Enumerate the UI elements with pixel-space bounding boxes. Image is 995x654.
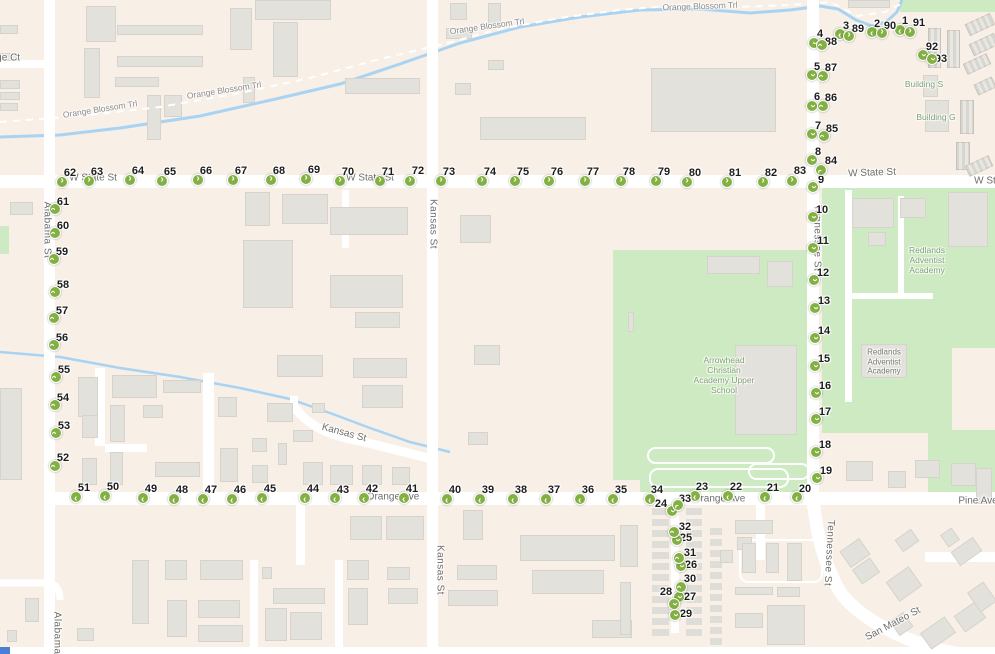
street-label-alabama-st: Alabama St: [52, 612, 63, 654]
building: [520, 535, 615, 561]
route-marker-label-11: 11: [817, 235, 829, 247]
route-marker-70[interactable]: ›: [334, 175, 346, 187]
building: [312, 403, 325, 413]
route-marker-68[interactable]: ›: [265, 174, 277, 186]
building: [468, 432, 488, 445]
route-marker-9[interactable]: ›: [807, 181, 819, 193]
direction-arrow-icon: ›: [60, 176, 63, 186]
direction-arrow-icon: ›: [230, 495, 233, 505]
route-marker-34[interactable]: ›: [644, 493, 656, 505]
building: [455, 83, 471, 95]
building: [787, 543, 802, 581]
street-label-pine-ave: Pine Ave: [958, 496, 995, 507]
route-marker-17[interactable]: ›: [810, 413, 822, 425]
building: [252, 438, 267, 452]
building: [895, 529, 920, 553]
street-label-kansas-st: Kansas St: [428, 199, 439, 249]
direction-arrow-icon: ›: [818, 134, 828, 137]
building: [293, 430, 313, 442]
building: [767, 261, 793, 287]
direction-arrow-icon: ›: [810, 278, 820, 281]
greenhouse-structure: [963, 53, 992, 75]
route-marker-37[interactable]: ›: [540, 493, 552, 505]
route-marker-51[interactable]: ›: [70, 491, 82, 503]
route-marker-49[interactable]: ›: [137, 492, 149, 504]
direction-arrow-icon: ›: [378, 175, 381, 185]
building: [353, 358, 407, 378]
building: [282, 194, 328, 224]
poi-label-arrowhead-christian-academy-upper-school: ArrowheadChristianAcademy UpperSchool: [694, 355, 755, 395]
building: [0, 92, 20, 100]
route-marker-46[interactable]: ›: [226, 493, 238, 505]
direction-arrow-icon: ›: [817, 74, 827, 77]
direction-arrow-icon: ›: [362, 494, 365, 504]
route-marker-label-27: 27: [684, 591, 696, 603]
direction-arrow-icon: ›: [48, 343, 58, 346]
route-marker-33[interactable]: ›: [672, 499, 684, 511]
building: [450, 3, 467, 20]
direction-arrow-icon: ›: [838, 30, 841, 40]
route-marker-55[interactable]: ›: [50, 371, 62, 383]
route-marker-74[interactable]: ›: [476, 175, 488, 187]
route-marker-22[interactable]: ›: [722, 490, 734, 502]
direction-arrow-icon: ›: [670, 602, 680, 605]
direction-arrow-icon: ›: [648, 495, 651, 505]
direction-arrow-icon: ›: [74, 493, 77, 503]
route-marker-19[interactable]: ›: [811, 472, 823, 484]
street-label-w-state-st: W State St: [848, 167, 896, 180]
street-label-tennessee-st: Tennessee St: [822, 519, 836, 586]
building: [448, 590, 498, 606]
route-marker-81[interactable]: ›: [721, 176, 733, 188]
building: [347, 560, 369, 580]
direction-arrow-icon: ›: [48, 316, 58, 319]
direction-arrow-icon: ›: [671, 613, 681, 616]
direction-arrow-icon: ›: [870, 28, 873, 38]
building: [348, 588, 368, 625]
direction-arrow-icon: ›: [103, 492, 106, 502]
direction-arrow-icon: ›: [685, 176, 688, 186]
building: [220, 448, 238, 482]
building: [278, 443, 287, 465]
building: [846, 461, 873, 481]
building: [262, 567, 272, 579]
route-marker-label-91: 91: [913, 17, 925, 29]
direction-arrow-icon: ›: [260, 494, 263, 504]
poi-label-building-s: Building S: [905, 79, 943, 89]
route-marker-40[interactable]: ›: [441, 493, 453, 505]
route-marker-16[interactable]: ›: [810, 387, 822, 399]
route-marker-14[interactable]: ›: [809, 332, 821, 344]
direction-arrow-icon: ›: [654, 175, 657, 185]
route-marker-35[interactable]: ›: [607, 493, 619, 505]
route-marker-65[interactable]: ›: [156, 175, 168, 187]
building: [86, 6, 116, 42]
building: [868, 232, 886, 246]
direction-arrow-icon: ›: [908, 26, 911, 36]
building: [10, 202, 33, 215]
building: [620, 582, 631, 635]
building: [362, 385, 403, 408]
route-marker-39[interactable]: ›: [474, 493, 486, 505]
direction-arrow-icon: ›: [48, 257, 58, 260]
building: [267, 403, 293, 422]
direction-arrow-icon: ›: [402, 494, 405, 504]
route-marker-50[interactable]: ›: [99, 490, 111, 502]
direction-arrow-icon: ›: [808, 158, 818, 161]
direction-arrow-icon: ›: [583, 175, 586, 185]
direction-arrow-icon: ›: [304, 173, 307, 183]
map-canvas[interactable]: Orange CtW State StW State StW State StW…: [0, 0, 995, 654]
building: [330, 207, 408, 235]
direction-arrow-icon: ›: [813, 476, 823, 479]
direction-arrow-icon: ›: [160, 175, 163, 185]
route-marker-93[interactable]: ›: [926, 53, 938, 65]
direction-arrow-icon: ›: [809, 215, 819, 218]
building: [480, 117, 586, 140]
direction-arrow-icon: ›: [544, 495, 547, 505]
building: [463, 510, 483, 540]
greenhouse-structure: [947, 30, 960, 68]
building: [886, 566, 923, 602]
direction-arrow-icon: ›: [790, 175, 793, 185]
direction-arrow-icon: ›: [172, 495, 175, 505]
building: [948, 192, 988, 247]
route-marker-53[interactable]: ›: [50, 427, 62, 439]
route-marker-label-84: 84: [825, 155, 837, 167]
building: [25, 598, 39, 622]
route-marker-43[interactable]: ›: [329, 492, 341, 504]
direction-arrow-icon: ›: [480, 175, 483, 185]
building: [273, 22, 298, 77]
building: [230, 8, 252, 50]
direction-arrow-icon: ›: [511, 495, 514, 505]
building: [277, 355, 323, 377]
townhouse-row: [652, 508, 669, 638]
building: [742, 543, 756, 573]
building: [132, 560, 149, 624]
parking-lot-outline: [647, 447, 775, 464]
building: [0, 388, 22, 480]
route-marker-48[interactable]: ›: [168, 493, 180, 505]
building: [155, 462, 200, 477]
direction-arrow-icon: ›: [439, 175, 442, 185]
greenhouse-structure: [965, 13, 995, 37]
building: [707, 256, 760, 274]
building: [386, 516, 424, 540]
route-marker-84[interactable]: ›: [815, 164, 827, 176]
townhouse-row: [710, 528, 722, 646]
building: [387, 567, 410, 580]
building: [198, 600, 240, 618]
direction-arrow-icon: ›: [49, 290, 59, 293]
building: [848, 0, 890, 8]
route-marker-73[interactable]: ›: [435, 175, 447, 187]
route-marker-label-83: 83: [794, 165, 806, 177]
route-marker-80[interactable]: ›: [681, 176, 693, 188]
direction-arrow-icon: ›: [795, 493, 798, 503]
route-marker-36[interactable]: ›: [574, 493, 586, 505]
trail-label-orange-blossom-trl: Orange Blossom Trl: [62, 98, 138, 120]
direction-arrow-icon: ›: [763, 493, 766, 503]
direction-arrow-icon: ›: [668, 530, 678, 533]
greenhouse-structure: [960, 100, 974, 134]
building: [165, 560, 187, 580]
route-marker-71[interactable]: ›: [374, 175, 386, 187]
route-marker-29[interactable]: ›: [669, 609, 681, 621]
route-marker-75[interactable]: ›: [509, 175, 521, 187]
building: [218, 397, 237, 417]
building: [628, 312, 634, 332]
route-marker-62[interactable]: ›: [56, 176, 68, 188]
road-local-road: [203, 373, 214, 493]
direction-arrow-icon: ›: [408, 175, 411, 185]
parking-lot-outline: [748, 463, 810, 480]
direction-arrow-icon: ›: [50, 375, 60, 378]
route-marker-78[interactable]: ›: [615, 175, 627, 187]
building: [84, 48, 100, 98]
building: [245, 192, 270, 226]
street-label-orange-ct: Orange Ct: [0, 53, 20, 64]
building: [532, 570, 604, 594]
route-marker-56[interactable]: ›: [48, 339, 60, 351]
route-marker-57[interactable]: ›: [48, 312, 60, 324]
direction-arrow-icon: ›: [812, 417, 822, 420]
road-local-road: [250, 560, 258, 654]
route-marker-31[interactable]: ›: [673, 552, 685, 564]
road-campus-road: [845, 190, 852, 402]
route-marker-15[interactable]: ›: [809, 360, 821, 372]
building: [620, 525, 638, 567]
building: [777, 587, 800, 597]
direction-arrow-icon: ›: [673, 556, 683, 559]
direction-arrow-icon: ›: [675, 585, 685, 588]
road-local-road: [335, 560, 343, 654]
route-marker-79[interactable]: ›: [650, 175, 662, 187]
direction-arrow-icon: ›: [478, 495, 481, 505]
route-marker-41[interactable]: ›: [398, 492, 410, 504]
building: [303, 462, 323, 485]
route-marker-label-31: 31: [684, 547, 696, 559]
route-marker-42[interactable]: ›: [358, 492, 370, 504]
direction-arrow-icon: ›: [619, 175, 622, 185]
building: [0, 80, 20, 89]
route-marker-67[interactable]: ›: [227, 174, 239, 186]
direction-arrow-icon: ›: [231, 174, 234, 184]
road-south-road: [0, 647, 995, 654]
building: [143, 405, 163, 418]
green-area: [0, 226, 9, 254]
building: [355, 312, 400, 328]
direction-arrow-icon: ›: [809, 246, 819, 249]
building: [940, 527, 960, 547]
route-marker-10[interactable]: ›: [807, 211, 819, 223]
building: [388, 588, 418, 604]
building: [7, 630, 17, 642]
route-marker-38[interactable]: ›: [507, 493, 519, 505]
route-marker-32[interactable]: ›: [668, 526, 680, 538]
route-marker-91[interactable]: ›: [904, 26, 916, 38]
direction-arrow-icon: ›: [812, 391, 822, 394]
building: [117, 56, 203, 67]
route-marker-label-29: 29: [680, 608, 692, 620]
direction-arrow-icon: ›: [898, 26, 901, 36]
building: [735, 613, 763, 628]
route-marker-13[interactable]: ›: [809, 302, 821, 314]
building: [255, 0, 331, 20]
direction-arrow-icon: ›: [928, 57, 938, 60]
road-campus-road: [845, 293, 933, 299]
route-marker-88[interactable]: ›: [816, 39, 828, 51]
route-marker-63[interactable]: ›: [83, 175, 95, 187]
route-marker-61[interactable]: ›: [49, 203, 61, 215]
street-label-kansas-st: Kansas St: [435, 545, 446, 595]
route-marker-72[interactable]: ›: [404, 175, 416, 187]
route-marker-label-72: 72: [412, 165, 424, 177]
building: [273, 588, 325, 604]
poi-label-redlands-adventist-academy: RedlandsAdventistAcademy: [867, 348, 901, 377]
road-alabama-st: [44, 0, 55, 654]
direction-arrow-icon: ›: [49, 231, 59, 234]
building: [651, 68, 776, 132]
building: [112, 375, 157, 398]
direction-arrow-icon: ›: [725, 176, 728, 186]
route-marker-18[interactable]: ›: [810, 446, 822, 458]
route-marker-45[interactable]: ›: [256, 492, 268, 504]
route-marker-90[interactable]: ›: [876, 27, 888, 39]
building: [345, 78, 420, 94]
route-marker-76[interactable]: ›: [543, 175, 555, 187]
route-marker-58[interactable]: ›: [49, 286, 61, 298]
direction-arrow-icon: ›: [201, 495, 204, 505]
building: [265, 608, 287, 641]
route-marker-11[interactable]: ›: [807, 242, 819, 254]
poi-label-building-g: Building G: [916, 112, 955, 122]
building: [457, 565, 497, 580]
direction-arrow-icon: ›: [333, 494, 336, 504]
route-marker-86[interactable]: ›: [817, 100, 829, 112]
direction-arrow-icon: ›: [811, 306, 821, 309]
direction-arrow-icon: ›: [513, 175, 516, 185]
building: [82, 458, 97, 485]
direction-arrow-icon: ›: [816, 43, 826, 46]
direction-arrow-icon: ›: [141, 494, 144, 504]
building: [330, 275, 403, 308]
building: [766, 543, 779, 573]
green-area: [900, 0, 995, 12]
building: [951, 463, 976, 486]
direction-arrow-icon: ›: [673, 538, 683, 541]
road-local-road: [296, 505, 305, 565]
building: [852, 198, 894, 228]
route-marker-44[interactable]: ›: [299, 492, 311, 504]
building: [82, 415, 98, 438]
direction-arrow-icon: ›: [196, 174, 199, 184]
building: [735, 587, 773, 595]
building: [920, 616, 956, 650]
route-marker-82[interactable]: ›: [757, 176, 769, 188]
route-marker-12[interactable]: ›: [808, 274, 820, 286]
route-marker-59[interactable]: ›: [48, 253, 60, 265]
route-marker-30[interactable]: ›: [675, 581, 687, 593]
route-marker-83[interactable]: ›: [786, 175, 798, 187]
building: [330, 465, 353, 485]
building: [115, 77, 159, 87]
direction-arrow-icon: ›: [811, 364, 821, 367]
direction-arrow-icon: ›: [673, 501, 682, 510]
route-marker-47[interactable]: ›: [197, 493, 209, 505]
building: [888, 471, 906, 488]
building: [0, 103, 18, 111]
route-marker-60[interactable]: ›: [49, 227, 61, 239]
route-marker-52[interactable]: ›: [49, 460, 61, 472]
route-marker-54[interactable]: ›: [49, 399, 61, 411]
direction-arrow-icon: ›: [445, 495, 448, 505]
building: [460, 215, 491, 243]
route-marker-label-28: 28: [660, 586, 672, 598]
direction-arrow-icon: ›: [49, 207, 59, 210]
street-label-kansas-st: Kansas St: [321, 422, 368, 444]
route-marker-21[interactable]: ›: [759, 491, 771, 503]
building: [290, 612, 322, 640]
greenhouse-structure: [969, 33, 995, 57]
building: [915, 460, 940, 478]
building: [720, 550, 733, 563]
building: [252, 465, 268, 483]
building: [200, 560, 243, 580]
building: [0, 25, 18, 34]
route-marker-8[interactable]: ›: [806, 154, 818, 166]
building: [900, 198, 926, 218]
building: [198, 625, 243, 642]
building: [167, 600, 187, 637]
route-marker-69[interactable]: ›: [300, 173, 312, 185]
direction-arrow-icon: ›: [49, 403, 59, 406]
direction-arrow-icon: ›: [338, 175, 341, 185]
route-marker-66[interactable]: ›: [192, 174, 204, 186]
direction-arrow-icon: ›: [128, 174, 131, 184]
direction-arrow-icon: ›: [809, 185, 819, 188]
route-marker-20[interactable]: ›: [791, 491, 803, 503]
direction-arrow-icon: ›: [726, 492, 729, 502]
direction-arrow-icon: ›: [761, 176, 764, 186]
direction-arrow-icon: ›: [49, 464, 59, 467]
route-marker-64[interactable]: ›: [124, 174, 136, 186]
building: [735, 520, 773, 534]
building: [77, 628, 94, 641]
direction-arrow-icon: ›: [811, 336, 821, 339]
route-marker-85[interactable]: ›: [818, 130, 830, 142]
trail-label-orange-blossom-trl: Orange Blossom Trl: [662, 0, 737, 12]
direction-arrow-icon: ›: [269, 174, 272, 184]
route-marker-89[interactable]: ›: [843, 30, 855, 42]
direction-arrow-icon: ›: [693, 492, 696, 502]
direction-arrow-icon: ›: [303, 494, 306, 504]
route-marker-87[interactable]: ›: [817, 70, 829, 82]
building: [110, 405, 125, 442]
poi-label-redlands-adventist-academy: RedlandsAdventistAcademy: [909, 245, 945, 275]
direction-arrow-icon: ›: [87, 175, 90, 185]
direction-arrow-icon: ›: [547, 175, 550, 185]
building: [243, 240, 293, 308]
direction-arrow-icon: ›: [578, 495, 581, 505]
road-local-road: [105, 444, 147, 452]
building: [147, 95, 161, 140]
route-marker-77[interactable]: ›: [579, 175, 591, 187]
building: [488, 60, 504, 70]
direction-arrow-icon: ›: [880, 27, 883, 37]
direction-arrow-icon: ›: [847, 30, 850, 40]
